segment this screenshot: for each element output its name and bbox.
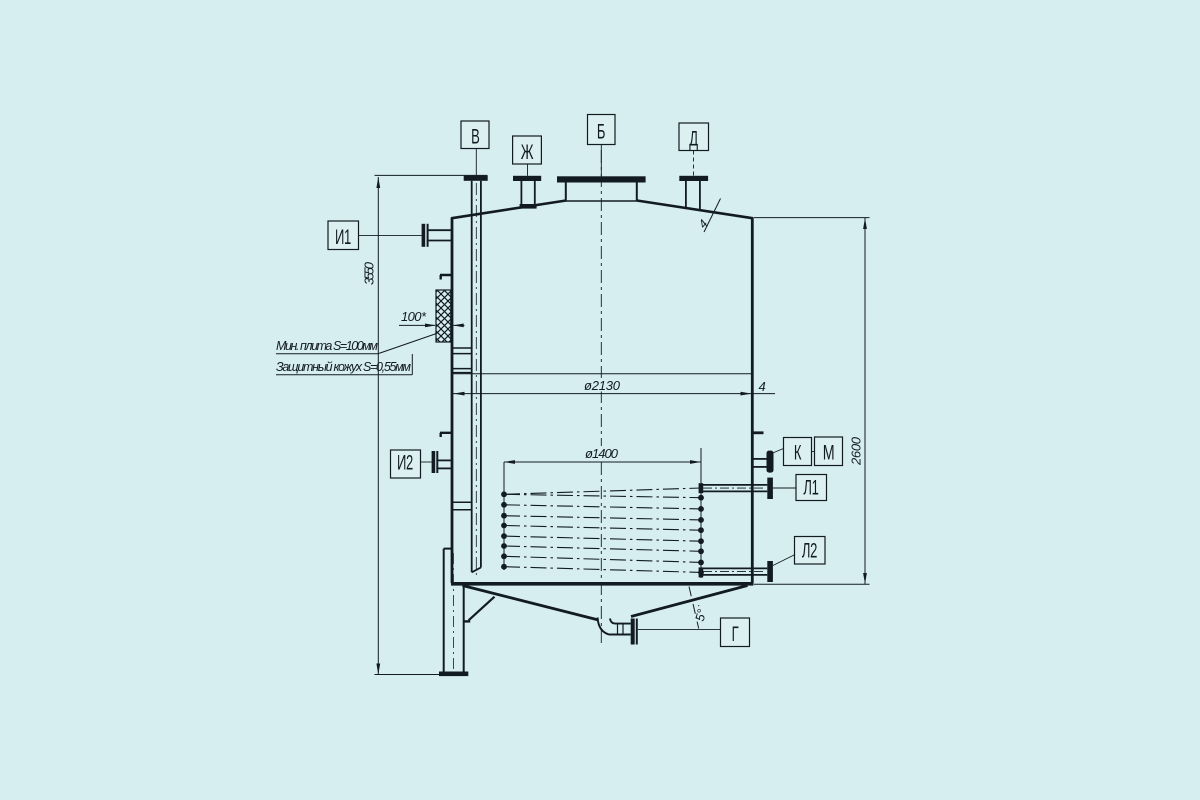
svg-text:Д: Д (689, 126, 698, 150)
svg-text:В: В (471, 124, 479, 148)
svg-text:3550: 3550 (362, 261, 377, 285)
svg-text:Ж: Ж (521, 140, 534, 164)
svg-text:Б: Б (597, 119, 605, 143)
svg-text:Г: Г (732, 622, 739, 646)
svg-text:2600: 2600 (849, 436, 864, 466)
svg-text:И2: И2 (397, 450, 413, 474)
svg-text:М: М (823, 441, 835, 464)
svg-text:И1: И1 (335, 225, 351, 249)
svg-text:4: 4 (759, 379, 766, 394)
svg-text:Л1: Л1 (803, 475, 818, 499)
svg-text:100*: 100* (401, 309, 427, 324)
svg-text:К: К (794, 440, 802, 464)
svg-text:Защитный кожух S=0,55мм: Защитный кожух S=0,55мм (276, 360, 411, 374)
svg-text:Мин. плита S=100мм: Мин. плита S=100мм (276, 339, 378, 353)
svg-text:ø2130: ø2130 (584, 378, 621, 393)
svg-text:Л2: Л2 (802, 538, 817, 562)
svg-text:5°˙: 5°˙ (693, 604, 710, 623)
svg-text:ø1400: ø1400 (585, 446, 619, 461)
